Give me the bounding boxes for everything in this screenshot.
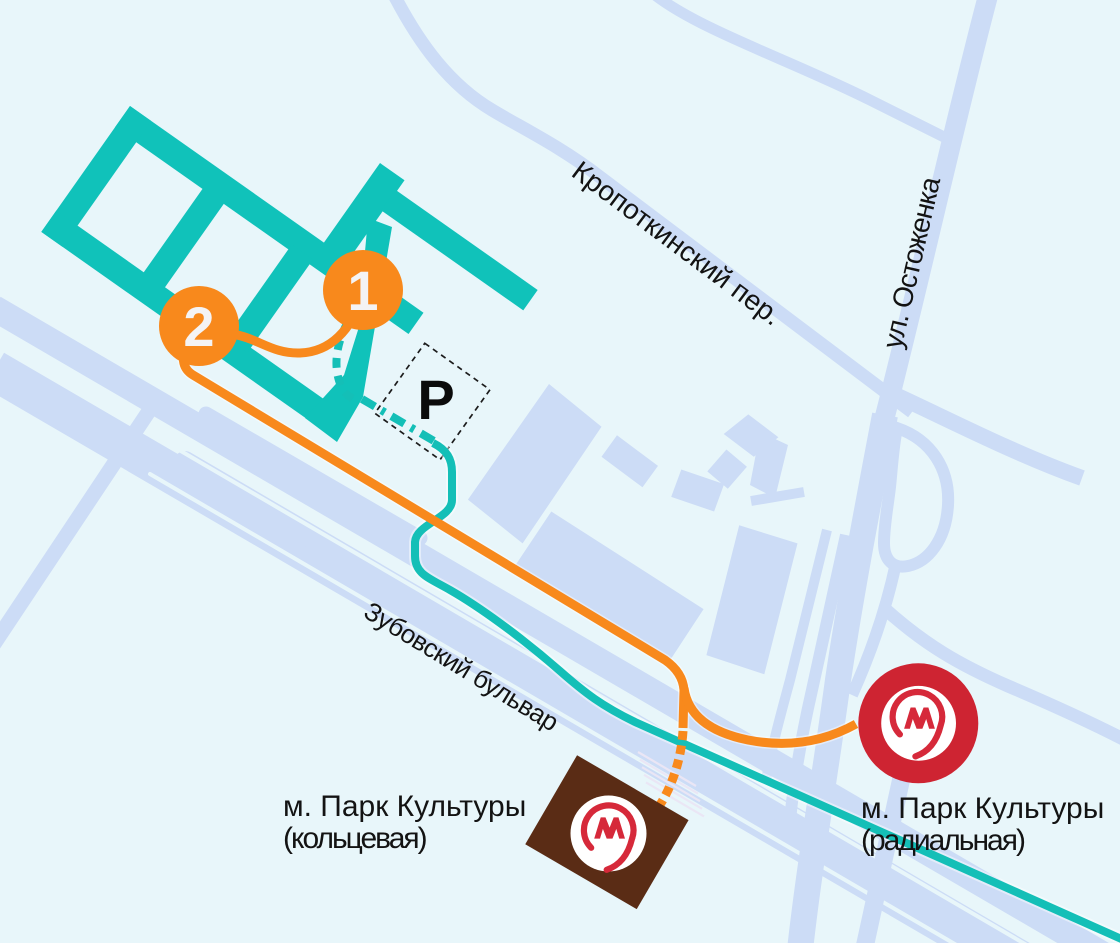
svg-text:м. Парк Культуры: м. Парк Культуры	[283, 790, 526, 823]
svg-text:2: 2	[183, 295, 214, 358]
svg-text:P: P	[417, 368, 454, 431]
svg-text:1: 1	[347, 259, 378, 322]
svg-text:м. Парк Культуры: м. Парк Культуры	[861, 792, 1104, 825]
svg-text:(радиальная): (радиальная)	[861, 824, 1025, 857]
svg-text:(кольцевая): (кольцевая)	[283, 822, 427, 855]
